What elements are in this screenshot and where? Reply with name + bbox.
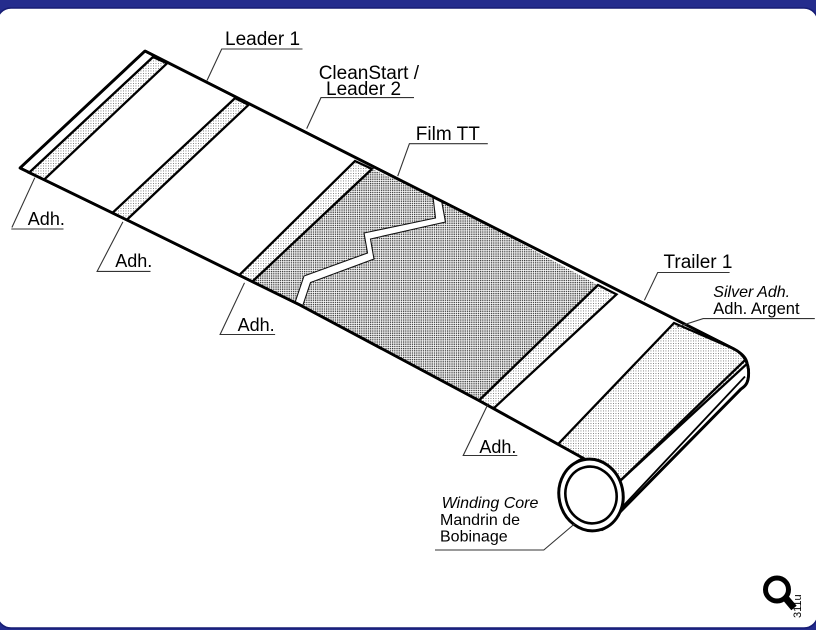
svg-text:Trailer 1: Trailer 1 xyxy=(664,252,733,273)
svg-text:Bobinage: Bobinage xyxy=(440,529,508,546)
svg-text:311u: 311u xyxy=(792,594,804,618)
svg-text:Adh.: Adh. xyxy=(479,437,516,457)
svg-text:Adh. Argent: Adh. Argent xyxy=(713,300,800,318)
svg-text:Silver Adh.: Silver Adh. xyxy=(713,284,790,301)
svg-text:Leader 2: Leader 2 xyxy=(326,79,401,100)
svg-text:Adh.: Adh. xyxy=(28,209,65,229)
svg-text:Winding Core: Winding Core xyxy=(442,495,539,512)
svg-text:Adh.: Adh. xyxy=(238,315,275,335)
svg-text:Adh.: Adh. xyxy=(115,251,152,271)
svg-text:Mandrin de: Mandrin de xyxy=(440,512,520,529)
svg-text:Film TT: Film TT xyxy=(416,124,480,145)
svg-text:Leader 1: Leader 1 xyxy=(225,29,300,50)
